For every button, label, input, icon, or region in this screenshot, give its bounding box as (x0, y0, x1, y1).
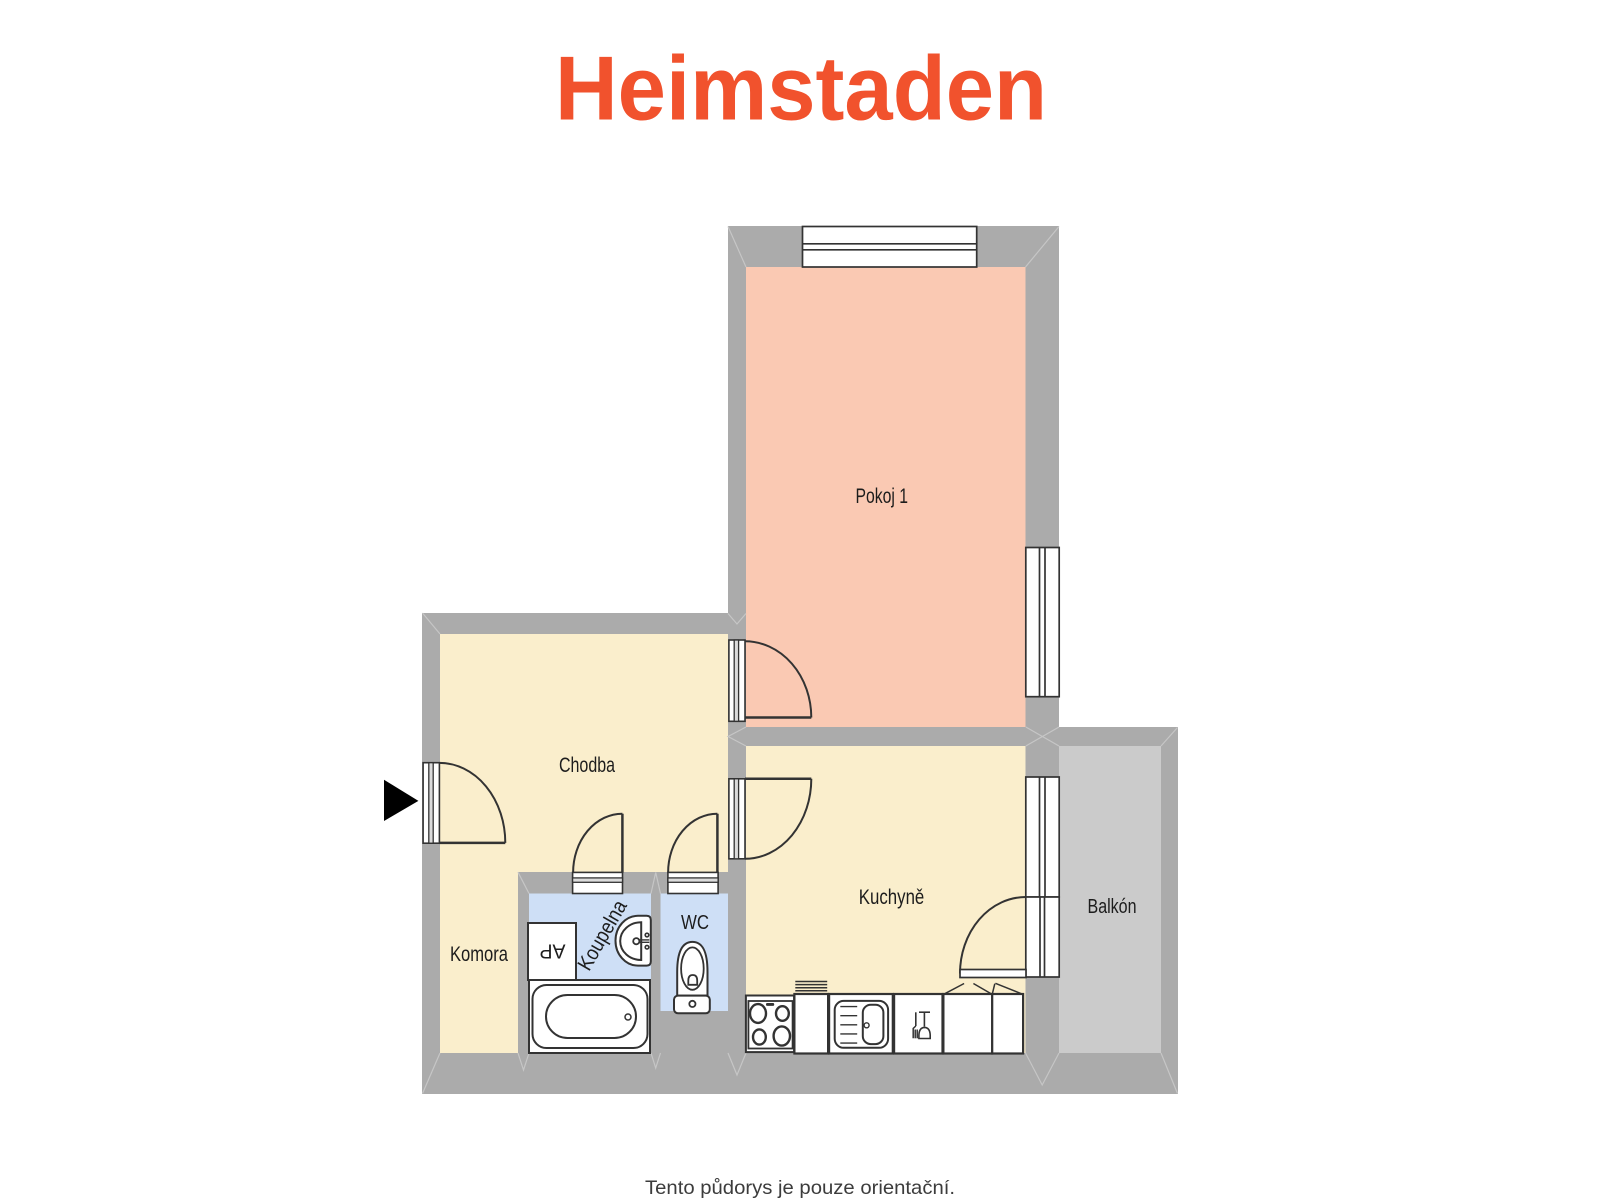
svg-text:Tento půdorys je pouze orienta: Tento půdorys je pouze orientační. (645, 1177, 955, 1199)
svg-text:Chodba: Chodba (559, 753, 615, 777)
svg-text:Pokoj 1: Pokoj 1 (856, 485, 909, 508)
svg-text:WC: WC (681, 912, 709, 934)
svg-text:Kuchyně: Kuchyně (859, 886, 925, 909)
svg-text:Komora: Komora (450, 943, 508, 966)
svg-text:Heimstaden: Heimstaden (555, 39, 1047, 140)
svg-text:Balkón: Balkón (1088, 895, 1137, 918)
svg-text:AP: AP (540, 940, 566, 962)
